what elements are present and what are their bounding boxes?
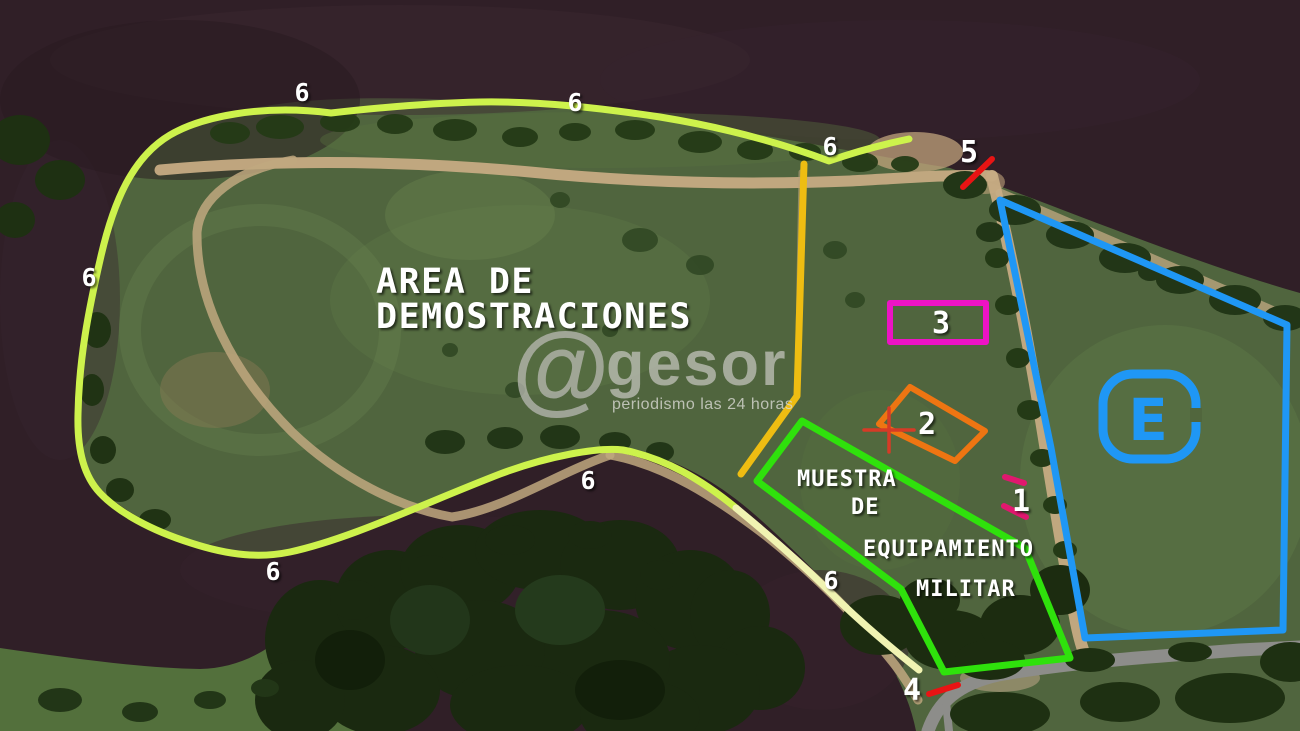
parking-symbol-ring-gap (1190, 408, 1202, 422)
point-label-5: 5 (960, 135, 978, 170)
route-marker-6-bottom-mid: 6 (580, 466, 595, 495)
parking-symbol-letter: E (1128, 386, 1168, 454)
equipment-zone-label-2: DE (851, 495, 880, 520)
satellite-map: E AREA DE DEMOSTRACIONES MUESTRA DE EQUI… (0, 0, 1300, 731)
point-label-2: 2 (918, 407, 936, 442)
watermark-brand: gesor (606, 329, 788, 399)
area-title-line1: AREA DE (376, 262, 534, 302)
route-marker-6-top-mid: 6 (567, 88, 582, 117)
equipment-zone-label-1: MUESTRA (797, 467, 897, 492)
equipment-zone-label-4: MILITAR (916, 577, 1016, 602)
route-marker-6-bottom-left: 6 (265, 557, 280, 586)
point-label-4: 4 (903, 673, 921, 708)
watermark-at-icon: @ (512, 312, 610, 424)
point-label-1: 1 (1012, 484, 1030, 519)
route-marker-6-bottom-right: 6 (823, 566, 838, 595)
watermark-tagline: periodismo las 24 horas (612, 396, 793, 413)
route-marker-6-top-right: 6 (822, 132, 837, 161)
map-canvas: E AREA DE DEMOSTRACIONES MUESTRA DE EQUI… (0, 0, 1300, 731)
point-label-3: 3 (932, 306, 950, 341)
paved-road-branch (946, 702, 949, 731)
watermark: @ gesor periodismo las 24 horas (512, 312, 793, 424)
route-marker-6-top-left: 6 (294, 78, 309, 107)
equipment-zone-label-3: EQUIPAMIENTO (863, 537, 1034, 562)
route-marker-6-left: 6 (81, 263, 96, 292)
